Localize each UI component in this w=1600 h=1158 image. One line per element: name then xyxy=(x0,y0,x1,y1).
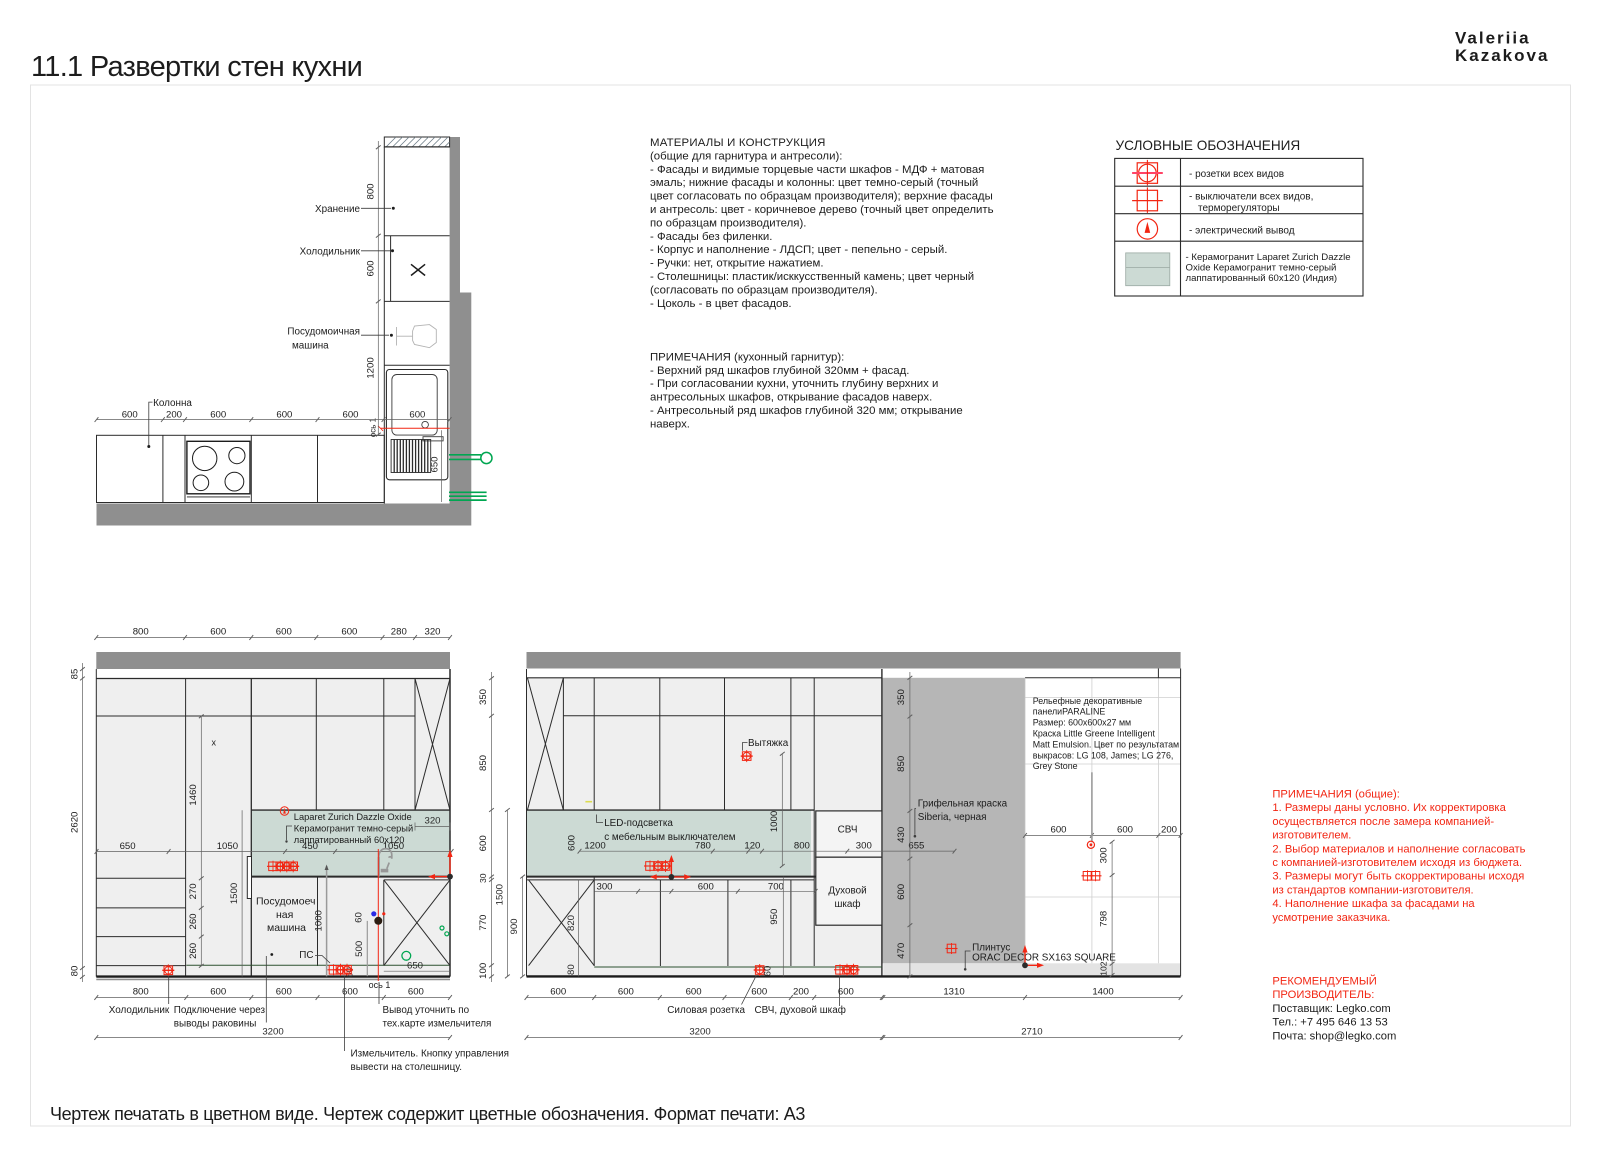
svg-text:(согласовать по образцам произ: (согласовать по образцам производителя). xyxy=(650,284,878,296)
svg-text:200: 200 xyxy=(1161,824,1177,835)
svg-text:850: 850 xyxy=(896,756,907,772)
svg-text:по образцам производителя).: по образцам производителя). xyxy=(650,217,806,229)
svg-text:600: 600 xyxy=(698,882,714,893)
svg-text:усмотрение заказчика.: усмотрение заказчика. xyxy=(1272,912,1390,924)
svg-text:820: 820 xyxy=(566,915,577,931)
svg-text:изготовителем.: изготовителем. xyxy=(1272,830,1351,842)
svg-text:Грифельная краска: Грифельная краска xyxy=(918,799,1008,810)
svg-text:- Фасады без филенки.: - Фасады без филенки. xyxy=(650,231,772,243)
svg-text:85: 85 xyxy=(70,669,81,680)
svg-text:Тел.: +7 495 646 13 53: Тел.: +7 495 646 13 53 xyxy=(1272,1017,1387,1029)
svg-text:ная: ная xyxy=(276,909,293,921)
svg-text:600: 600 xyxy=(210,627,226,638)
svg-text:LED-подсветка: LED-подсветка xyxy=(604,818,673,829)
svg-text:- Фасады и видимые торцевые ча: - Фасады и видимые торцевые части шкафов… xyxy=(650,164,984,176)
svg-text:200: 200 xyxy=(166,409,182,420)
svg-text:лаппатированный 60х120: лаппатированный 60х120 xyxy=(294,835,405,845)
svg-text:Посудомоеч: Посудомоеч xyxy=(256,896,316,908)
svg-text:600: 600 xyxy=(276,409,292,420)
svg-text:600: 600 xyxy=(550,987,566,998)
svg-text:200: 200 xyxy=(793,987,809,998)
svg-text:выкрасов: LG 108, James; LG 27: выкрасов: LG 108, James; LG 276, xyxy=(1033,750,1174,760)
svg-text:1500: 1500 xyxy=(229,883,240,904)
svg-text:МАТЕРИАЛЫ И КОНСТРУКЦИЯ: МАТЕРИАЛЫ И КОНСТРУКЦИЯ xyxy=(650,137,826,149)
svg-text:Силовая розетка: Силовая розетка xyxy=(667,1005,745,1016)
svg-text:650: 650 xyxy=(120,841,136,852)
svg-text:600: 600 xyxy=(276,627,292,638)
svg-text:80: 80 xyxy=(70,966,81,977)
svg-text:шкаф: шкаф xyxy=(834,899,860,910)
svg-text:тех.карте измельчителя: тех.карте измельчителя xyxy=(383,1019,492,1030)
svg-text:- Столешницы: пластик/исккусст: - Столешницы: пластик/исккусственный кам… xyxy=(650,271,974,283)
svg-text:600: 600 xyxy=(751,987,767,998)
svg-text:Колонна: Колонна xyxy=(153,398,192,409)
svg-text:и антресоль: цвет - коричневое: и антресоль: цвет - коричневое дерево (т… xyxy=(650,204,994,216)
svg-text:260: 260 xyxy=(188,943,199,959)
svg-text:ПС: ПС xyxy=(299,950,313,961)
svg-text:Вывод уточнить по: Вывод уточнить по xyxy=(383,1005,470,1016)
svg-text:Посудомоичная: Посудомоичная xyxy=(287,327,360,338)
svg-text:350: 350 xyxy=(896,689,907,705)
svg-text:машина: машина xyxy=(267,922,306,934)
svg-text:Siberia, черная: Siberia, черная xyxy=(918,812,987,823)
svg-text:2710: 2710 xyxy=(1021,1027,1042,1038)
svg-text:Kazakova: Kazakova xyxy=(1455,46,1549,65)
svg-text:терморегуляторы: терморегуляторы xyxy=(1198,203,1280,214)
svg-text:выводы раковины: выводы раковины xyxy=(174,1019,257,1030)
svg-text:3200: 3200 xyxy=(689,1027,710,1038)
svg-text:650: 650 xyxy=(430,456,441,472)
svg-text:600: 600 xyxy=(618,987,634,998)
svg-text:- Корпус и наполнение - ЛДСП;: - Корпус и наполнение - ЛДСП; цвет - пеп… xyxy=(650,244,947,256)
svg-text:- Верхний ряд шкафов глубиной: - Верхний ряд шкафов глубиной 320мм + фа… xyxy=(650,365,909,377)
svg-text:Холодильник: Холодильник xyxy=(300,247,361,258)
svg-text:Laparet Zurich Dazzle Oxide: Laparet Zurich Dazzle Oxide xyxy=(294,812,412,822)
svg-text:(общие для гарнитура и антресо: (общие для гарнитура и антресоли): xyxy=(650,150,842,162)
svg-text:цвет согласовать по образцам п: цвет согласовать по образцам производите… xyxy=(650,191,993,203)
svg-text:100: 100 xyxy=(478,963,489,979)
svg-text:СВЧ: СВЧ xyxy=(838,825,858,836)
svg-text:800: 800 xyxy=(366,183,377,199)
svg-text:600: 600 xyxy=(366,260,377,276)
svg-text:30: 30 xyxy=(478,873,488,883)
svg-text:x: x xyxy=(212,738,217,748)
svg-text:1310: 1310 xyxy=(943,987,964,998)
svg-text:- розетки всех видов: - розетки всех видов xyxy=(1189,169,1284,180)
svg-text:Холодильник: Холодильник xyxy=(109,1005,170,1016)
svg-text:Подключение через: Подключение через xyxy=(174,1005,266,1016)
svg-text:655: 655 xyxy=(908,841,924,852)
svg-text:Почта: shop@legko.com: Почта: shop@legko.com xyxy=(1272,1030,1396,1042)
svg-text:600: 600 xyxy=(341,627,357,638)
svg-text:машина: машина xyxy=(292,341,329,352)
svg-text:Grey Stone: Grey Stone xyxy=(1033,761,1078,771)
svg-text:600: 600 xyxy=(566,835,577,851)
svg-text:- При согласовании кухни, уточ: - При согласовании кухни, уточнить глуби… xyxy=(650,378,938,390)
svg-text:900: 900 xyxy=(509,918,520,934)
svg-text:РЕКОМЕНДУЕМЫЙ: РЕКОМЕНДУЕМЫЙ xyxy=(1272,975,1376,988)
svg-text:600: 600 xyxy=(1117,824,1133,835)
svg-text:600: 600 xyxy=(210,409,226,420)
svg-text:300: 300 xyxy=(597,882,613,893)
svg-text:Поставщик: Legko.com: Поставщик: Legko.com xyxy=(1272,1003,1390,1015)
svg-text:300: 300 xyxy=(1099,847,1110,863)
svg-text:600: 600 xyxy=(409,410,425,421)
svg-text:1000: 1000 xyxy=(769,811,780,832)
svg-text:1400: 1400 xyxy=(1092,987,1113,998)
svg-text:ось 1: ось 1 xyxy=(369,417,378,437)
svg-text:ПРИМЕЧАНИЯ (общие):: ПРИМЕЧАНИЯ (общие): xyxy=(1272,789,1399,801)
svg-text:2620: 2620 xyxy=(70,812,81,833)
svg-text:- Ручки: нет, открытие нажатие: - Ручки: нет, открытие нажатием. xyxy=(650,258,824,270)
svg-text:2. Выбор материалов и наполнен: 2. Выбор материалов и наполнение согласо… xyxy=(1272,843,1525,855)
svg-text:950: 950 xyxy=(769,909,780,925)
svg-text:430: 430 xyxy=(896,827,907,843)
svg-text:эмаль; нижние фасады и колонны: эмаль; нижние фасады и колонны: цвет тем… xyxy=(650,177,978,189)
svg-text:700: 700 xyxy=(768,882,784,893)
svg-text:600: 600 xyxy=(408,987,424,998)
svg-text:Краска Little Greene Intellige: Краска Little Greene Intelligent xyxy=(1033,729,1156,739)
svg-text:антресольных шкафов, открывани: антресольных шкафов, открывание фасадов … xyxy=(650,392,932,404)
svg-text:650: 650 xyxy=(407,960,423,971)
svg-text:600: 600 xyxy=(1050,824,1066,835)
svg-text:260: 260 xyxy=(188,913,199,929)
svg-text:- Керамогранит Laparet Zurich: - Керамогранит Laparet Zurich Dazzle xyxy=(1186,252,1351,263)
svg-text:Рельефные декоративные: Рельефные декоративные xyxy=(1033,696,1143,706)
svg-text:3200: 3200 xyxy=(262,1027,283,1038)
svg-text:11.1 Развертки стен кухни: 11.1 Развертки стен кухни xyxy=(31,51,362,83)
svg-text:ПРОИЗВОДИТЕЛЬ:: ПРОИЗВОДИТЕЛЬ: xyxy=(1272,989,1374,1001)
svg-text:ось 1: ось 1 xyxy=(369,980,391,990)
svg-text:- выключатели всех видов,: - выключатели всех видов, xyxy=(1189,192,1313,203)
svg-text:с компанией-изготовителем исхо: с компанией-изготовителем исходя из бюдж… xyxy=(1272,857,1522,869)
svg-text:600: 600 xyxy=(122,409,138,420)
svg-text:наверх.: наверх. xyxy=(650,418,690,430)
svg-text:1. Размеры даны условно. Их ко: 1. Размеры даны условно. Их корректировк… xyxy=(1272,802,1506,814)
svg-text:600: 600 xyxy=(210,987,226,998)
svg-text:800: 800 xyxy=(133,987,149,998)
svg-text:4. Наполнение шкафа за фасадам: 4. Наполнение шкафа за фасадами на xyxy=(1272,898,1475,910)
svg-text:780: 780 xyxy=(695,841,711,852)
svg-text:600: 600 xyxy=(686,987,702,998)
svg-text:320: 320 xyxy=(424,816,440,827)
svg-text:Вытяжка: Вытяжка xyxy=(748,738,789,749)
svg-text:350: 350 xyxy=(478,689,489,705)
svg-text:80: 80 xyxy=(566,964,577,975)
svg-text:Чертеж печатать в цветном виде: Чертеж печатать в цветном виде. Чертеж с… xyxy=(50,1104,805,1124)
svg-text:600: 600 xyxy=(838,987,854,998)
svg-text:ПРИМЕЧАНИЯ (кухонный гарнитур): ПРИМЕЧАНИЯ (кухонный гарнитур): xyxy=(650,351,844,363)
svg-text:1200: 1200 xyxy=(584,841,605,852)
svg-text:798: 798 xyxy=(1099,911,1110,927)
svg-text:600: 600 xyxy=(896,884,907,900)
svg-text:Хранение: Хранение xyxy=(315,204,360,215)
svg-text:300: 300 xyxy=(856,841,872,852)
svg-text:Matt Emulsion. Цвет по результ: Matt Emulsion. Цвет по результатам xyxy=(1033,739,1179,749)
svg-text:Керамогранит темно-серый: Керамогранит темно-серый xyxy=(294,824,413,834)
svg-text:470: 470 xyxy=(896,943,907,959)
svg-text:вывести на столешницу.: вывести на столешницу. xyxy=(351,1062,463,1073)
svg-text:1500: 1500 xyxy=(495,884,506,905)
svg-text:600: 600 xyxy=(342,409,358,420)
svg-text:3. Размеры могут быть скоррект: 3. Размеры могут быть скорректированы ис… xyxy=(1272,871,1524,883)
svg-text:Измельчитель. Кнопку управлени: Измельчитель. Кнопку управления xyxy=(351,1049,509,1060)
svg-text:- электрический вывод: - электрический вывод xyxy=(1189,226,1295,237)
svg-text:850: 850 xyxy=(478,755,489,771)
svg-text:1050: 1050 xyxy=(217,841,238,852)
svg-text:Духовой: Духовой xyxy=(828,886,866,897)
svg-text:320: 320 xyxy=(424,627,440,638)
svg-text:- Цоколь - в цвет фасадов.: - Цоколь - в цвет фасадов. xyxy=(650,298,792,310)
svg-text:120: 120 xyxy=(744,841,760,852)
svg-text:60: 60 xyxy=(353,912,364,923)
svg-text:270: 270 xyxy=(188,883,199,899)
svg-text:1200: 1200 xyxy=(366,357,377,378)
svg-text:600: 600 xyxy=(478,835,489,851)
svg-text:800: 800 xyxy=(133,627,149,638)
svg-text:Valeriia: Valeriia xyxy=(1455,29,1531,48)
svg-text:СВЧ, духовой шкаф: СВЧ, духовой шкаф xyxy=(755,1005,846,1016)
svg-text:600: 600 xyxy=(276,987,292,998)
svg-text:770: 770 xyxy=(478,915,489,931)
svg-text:ORAC DECOR SX163 SQUARE: ORAC DECOR SX163 SQUARE xyxy=(972,953,1116,964)
svg-text:осуществляется после замера ко: осуществляется после замера компанией- xyxy=(1272,816,1494,828)
svg-text:из стандартов компании-изготов: из стандартов компании-изготовителя. xyxy=(1272,884,1473,896)
svg-text:60: 60 xyxy=(763,966,774,977)
svg-text:лаппатированный 60х120 (Индия): лаппатированный 60х120 (Индия) xyxy=(1186,273,1338,284)
svg-text:1000: 1000 xyxy=(314,910,325,931)
svg-text:280: 280 xyxy=(391,627,407,638)
svg-text:800: 800 xyxy=(794,841,810,852)
svg-text:УСЛОВНЫЕ ОБОЗНАЧЕНИЯ: УСЛОВНЫЕ ОБОЗНАЧЕНИЯ xyxy=(1116,138,1301,153)
svg-text:с мебельным выключателем: с мебельным выключателем xyxy=(604,832,736,843)
svg-text:500: 500 xyxy=(354,941,365,957)
svg-text:1460: 1460 xyxy=(188,784,199,805)
svg-text:Oxide Керамогранит темно-серый: Oxide Керамогранит темно-серый xyxy=(1186,262,1337,273)
svg-text:- Антресольный ряд шкафов глуб: - Антресольный ряд шкафов глубиной 320 м… xyxy=(650,405,963,417)
svg-text:панелиPARALINE: панелиPARALINE xyxy=(1033,707,1106,717)
svg-text:Размер: 600х600х27 мм: Размер: 600х600х27 мм xyxy=(1033,718,1131,728)
